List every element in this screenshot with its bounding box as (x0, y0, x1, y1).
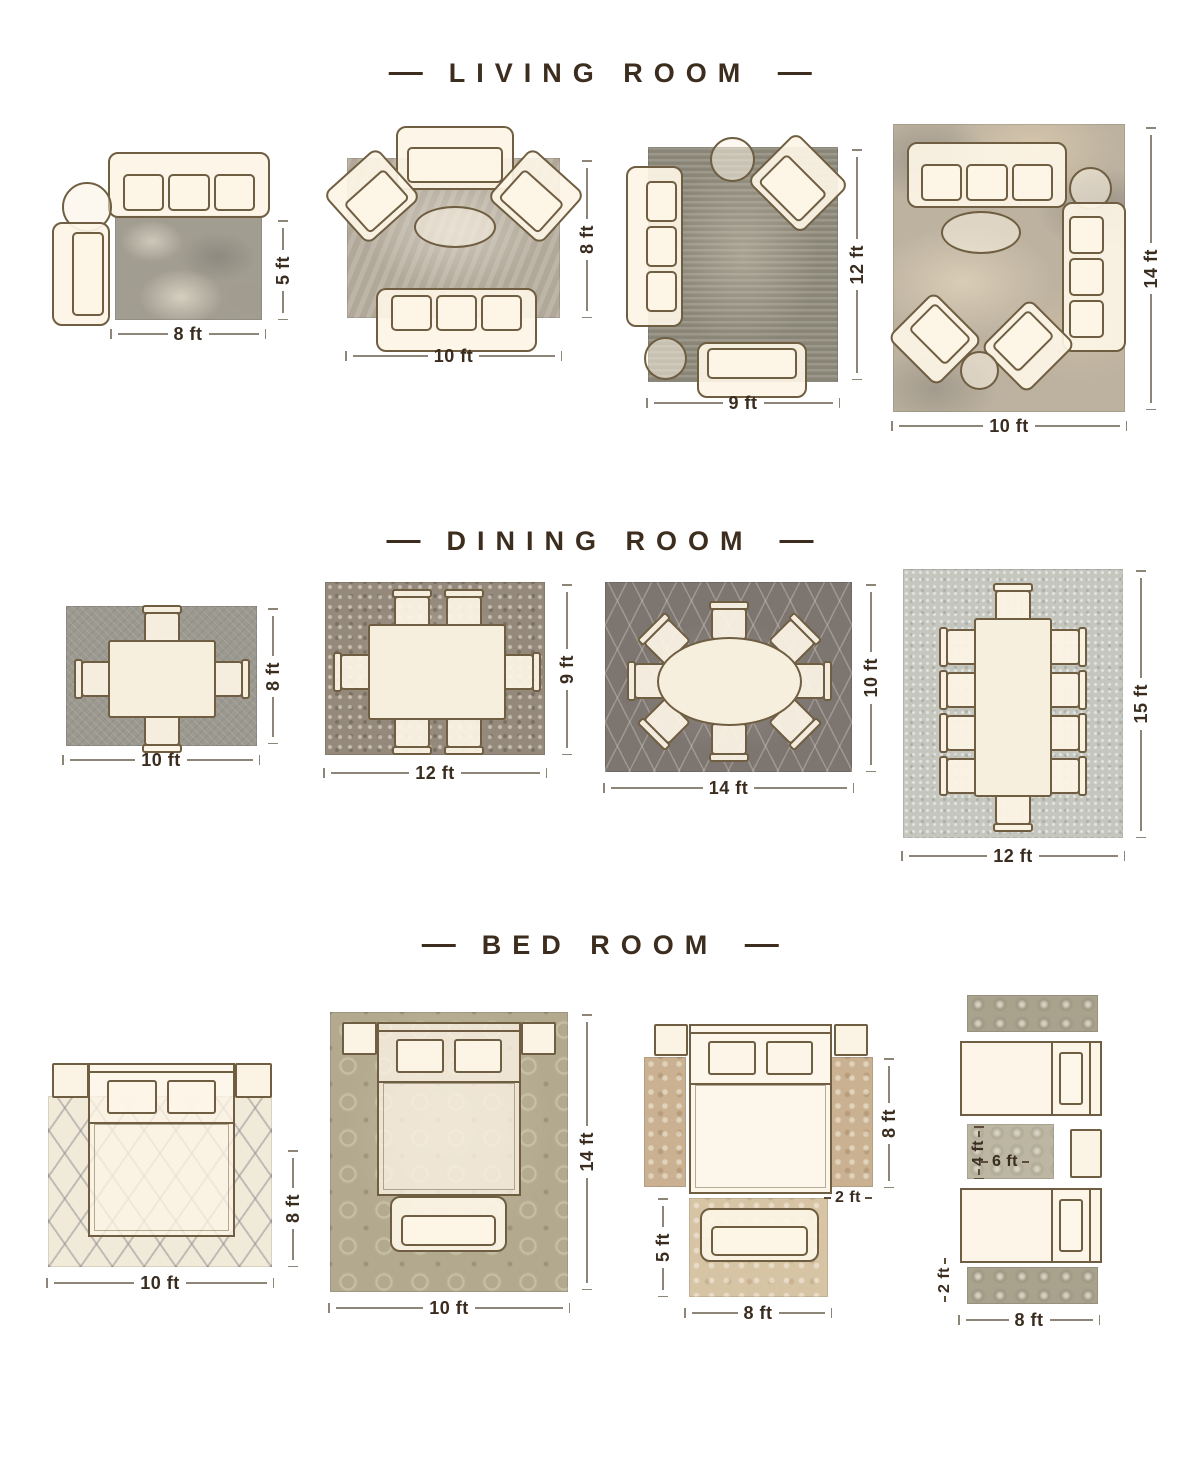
dr4-chair-bottom (995, 793, 1031, 825)
lr2-oval-coffee-table (414, 206, 496, 248)
dr1-dining-table (108, 640, 216, 718)
dim-line (566, 592, 568, 650)
cushion (1069, 300, 1104, 338)
dim-tick (658, 1296, 668, 1298)
bed-body (379, 1083, 519, 1194)
br3-runner-width-dimension: 2 ft (824, 1188, 882, 1208)
dr4-chair-right-1 (1048, 629, 1080, 665)
living-room-header: LIVING ROOM (389, 58, 812, 89)
dim-label: 14 ft (1141, 249, 1162, 289)
br1-height-dimension: 8 ft (282, 1150, 304, 1267)
cushion (921, 164, 962, 201)
dim-line (944, 1296, 946, 1302)
headboard (379, 1024, 519, 1032)
dim-tick (831, 1308, 833, 1318)
dr1-chair-bottom (144, 714, 180, 746)
rug-size-guide: LIVING ROOM 5 ft 8 ft 8 ft 10 ft (0, 0, 1200, 1467)
dim-tick (546, 768, 548, 778)
dim-tick (273, 1278, 275, 1288)
dim-line (54, 1282, 135, 1284)
dim-tick (1136, 837, 1146, 839)
dim-label: 10 ft (141, 750, 181, 771)
dim-tick (562, 584, 572, 586)
br2-height-dimension: 14 ft (576, 1014, 598, 1290)
cushion (646, 181, 677, 222)
dim-label: 14 ft (709, 778, 749, 799)
dim-line (779, 1312, 825, 1314)
sofa-cushions (401, 1215, 496, 1246)
br4-twin-bed-bottom (960, 1188, 1102, 1263)
dim-line (118, 333, 168, 335)
dim-line (865, 1197, 872, 1199)
dim-label: 12 ft (847, 245, 868, 285)
dim-line (70, 759, 136, 761)
cushion (168, 174, 210, 211)
br2-width-dimension: 10 ft (328, 1298, 570, 1318)
dim-tick (582, 1014, 592, 1016)
sofa-cushions (707, 348, 796, 379)
cushion (72, 232, 103, 316)
dim-line (209, 333, 259, 335)
br2-nightstand-right (521, 1022, 556, 1055)
dim-label: 10 ft (429, 1298, 469, 1319)
br3-runner-right (831, 1057, 873, 1187)
lr4-width-dimension: 10 ft (891, 416, 1127, 436)
dim-tick (288, 1266, 298, 1268)
sofa-cushions (391, 295, 523, 331)
cushion (481, 295, 522, 331)
dim-line (754, 787, 846, 789)
dim-tick (839, 398, 841, 408)
dim-label: 10 ft (989, 416, 1029, 437)
headboard (90, 1065, 233, 1073)
br3-nightstand-left (654, 1024, 688, 1056)
cushion (707, 348, 796, 379)
dim-tick (1146, 127, 1156, 129)
dim-line (566, 690, 568, 748)
lr3-loveseat (697, 342, 807, 398)
dim-line (479, 355, 554, 357)
br1-bed (88, 1063, 235, 1237)
bed-body (90, 1124, 233, 1235)
lr4-sofa-top (907, 142, 1067, 208)
header-dash (744, 944, 778, 947)
dim-line (888, 1066, 890, 1103)
pillow (454, 1039, 502, 1073)
cushion (1012, 164, 1053, 201)
dr4-height-dimension: 15 ft (1130, 570, 1152, 838)
br4-runner-top (967, 995, 1098, 1032)
dim-line (856, 290, 858, 372)
br3-loveseat (700, 1208, 819, 1262)
dim-tick (345, 351, 347, 361)
dim-line (187, 759, 253, 761)
section-title: DINING ROOM (447, 526, 754, 557)
dr4-chair-right-4 (1048, 758, 1080, 794)
dim-line (870, 592, 872, 653)
lr3-round-table-bottom (644, 337, 687, 380)
lr2-sofa (376, 288, 537, 352)
dim-line (1035, 425, 1120, 427)
headboard (1051, 1190, 1091, 1261)
dim-tick (603, 783, 605, 793)
dr3-oval-dining-table (657, 637, 802, 726)
lr4-oval-coffee-table (941, 211, 1021, 254)
dim-tick (958, 1315, 960, 1325)
dr2-chair-bottom-2 (446, 716, 482, 748)
lr1-width-dimension: 8 ft (110, 324, 266, 344)
br4-runner-bottom (967, 1267, 1098, 1304)
br3-bed (689, 1024, 832, 1194)
dim-line (1150, 135, 1152, 243)
header-dash (422, 944, 456, 947)
dim-tick (853, 783, 855, 793)
lr1-height-dimension: 5 ft (272, 220, 294, 320)
dim-tick (1099, 1315, 1101, 1325)
dim-line (888, 1144, 890, 1181)
dim-label: 12 ft (993, 846, 1033, 867)
dr1-width-dimension: 10 ft (62, 750, 260, 770)
sofa-cushions (407, 147, 503, 183)
dim-tick (265, 329, 267, 339)
br3-foot-rug-height-dimension: 5 ft (652, 1198, 674, 1297)
lr3-width-dimension: 9 ft (646, 393, 840, 413)
dim-tick (582, 317, 592, 319)
dim-tick (974, 1178, 984, 1180)
dim-label: 8 ft (1015, 1310, 1044, 1331)
lr4-sofa-right (1062, 202, 1126, 352)
dim-tick (569, 1303, 571, 1313)
br2-bench (390, 1196, 507, 1252)
sofa-cushions (123, 174, 256, 211)
dim-label: 5 ft (653, 1233, 674, 1262)
dr2-chair-bottom-1 (394, 716, 430, 748)
sofa-cushions (72, 232, 103, 316)
dim-line (662, 1268, 664, 1290)
lr1-sofa (108, 152, 270, 218)
dim-tick (884, 1187, 894, 1189)
lr2-width-dimension: 10 ft (345, 346, 562, 366)
dr3-chair-top (711, 608, 747, 640)
cushion (407, 147, 503, 183)
dim-tick (901, 851, 903, 861)
dim-line (944, 1258, 946, 1264)
dim-tick (62, 755, 64, 765)
header-dash (389, 72, 423, 75)
dim-line (981, 1161, 988, 1163)
dim-line (282, 228, 284, 250)
lr4-round-table-bottom (960, 351, 999, 390)
dim-line (336, 1307, 424, 1309)
dr2-chair-right (502, 654, 534, 690)
dim-line (353, 355, 428, 357)
dim-tick (684, 1308, 686, 1318)
dr2-height-dimension: 9 ft (556, 584, 578, 755)
header-dash (777, 72, 811, 75)
dim-line (1050, 1319, 1093, 1321)
dim-tick (1124, 851, 1126, 861)
br2-nightstand-left (342, 1022, 377, 1055)
dim-label: 2 ft (936, 1267, 954, 1293)
dim-label: 8 ft (879, 1109, 900, 1138)
dr3-height-dimension: 10 ft (860, 584, 882, 772)
sofa-cushions (646, 181, 677, 313)
br3-foot-rug-width-dimension: 8 ft (684, 1303, 832, 1323)
lr2-height-dimension: 8 ft (576, 160, 598, 318)
dim-tick (866, 584, 876, 586)
br3-nightstand-right (834, 1024, 868, 1056)
dim-label: 8 ft (283, 1194, 304, 1223)
dim-tick (1146, 409, 1156, 411)
dim-tick (884, 1058, 894, 1060)
dim-tick (259, 755, 261, 765)
dim-tick (328, 1303, 330, 1313)
dim-line (978, 1131, 980, 1137)
br1-width-dimension: 10 ft (46, 1273, 274, 1293)
br1-nightstand-left (52, 1063, 89, 1098)
cushion (123, 174, 165, 211)
dim-label: 9 ft (729, 393, 758, 414)
headboard (1051, 1043, 1091, 1114)
dim-tick (288, 1150, 298, 1152)
dim-line (611, 787, 703, 789)
header-dash (387, 540, 421, 543)
dim-line (475, 1307, 563, 1309)
dim-tick (646, 398, 648, 408)
dim-tick (561, 351, 563, 361)
cushion (1069, 258, 1104, 296)
pillow (766, 1041, 814, 1075)
dim-tick (582, 1289, 592, 1291)
dim-tick (852, 379, 862, 381)
dim-tick (658, 1198, 668, 1200)
dim-label: 10 ft (140, 1273, 180, 1294)
dim-label: 8 ft (263, 662, 284, 691)
dim-label: 12 ft (415, 763, 455, 784)
dim-tick (582, 160, 592, 162)
br4-between-rug-width-dimension: 6 ft (981, 1152, 1051, 1172)
pillow (167, 1080, 217, 1114)
dim-line (870, 704, 872, 765)
dim-label: 2 ft (835, 1189, 861, 1207)
br1-nightstand-right (235, 1063, 272, 1098)
dim-line (586, 168, 588, 219)
pillow-zone (90, 1073, 233, 1124)
dim-label: 15 ft (1131, 684, 1152, 724)
dim-tick (323, 768, 325, 778)
dim-tick (562, 754, 572, 756)
br4-runner-length-dimension: 8 ft (958, 1310, 1100, 1330)
dim-line (292, 1158, 294, 1189)
dim-line (764, 402, 833, 404)
dim-line (978, 1169, 980, 1175)
dim-line (586, 1178, 588, 1283)
dim-line (1140, 578, 1142, 679)
dim-tick (866, 771, 876, 773)
dr4-width-dimension: 12 ft (901, 846, 1125, 866)
dim-label: 5 ft (273, 256, 294, 285)
headboard (691, 1026, 830, 1034)
dim-tick (278, 220, 288, 222)
dr2-dining-table (368, 624, 506, 720)
br4-twin-bed-top (960, 1041, 1102, 1116)
dim-label: 14 ft (577, 1132, 598, 1172)
dim-line (282, 291, 284, 313)
lr2-loveseat (396, 126, 514, 190)
cushion (1069, 216, 1104, 254)
dim-label: 8 ft (174, 324, 203, 345)
br2-bed (377, 1022, 521, 1196)
dim-line (1022, 1161, 1029, 1163)
dim-line (662, 1206, 664, 1228)
lr4-height-dimension: 14 ft (1140, 127, 1162, 410)
dim-label: 6 ft (992, 1153, 1018, 1171)
cushion (711, 1226, 808, 1256)
bed-room-header: BED ROOM (422, 930, 779, 961)
pillow-zone (379, 1032, 519, 1083)
lr3-round-table-top (710, 137, 755, 182)
dim-line (1140, 730, 1142, 831)
dim-line (824, 1197, 831, 1199)
section-title: LIVING ROOM (449, 58, 752, 89)
dim-line (1039, 855, 1118, 857)
dim-line (654, 402, 723, 404)
dim-line (272, 616, 274, 656)
cushion (646, 226, 677, 267)
sofa-cushions (921, 164, 1052, 201)
pillow (708, 1041, 756, 1075)
br3-runner-height-dimension: 8 ft (878, 1058, 900, 1188)
cushion (214, 174, 256, 211)
cushion (391, 295, 432, 331)
pillow (396, 1039, 444, 1073)
section-title: BED ROOM (482, 930, 719, 961)
dim-tick (268, 608, 278, 610)
dim-line (331, 772, 410, 774)
br3-runner-left (644, 1057, 686, 1187)
dim-tick (46, 1278, 48, 1288)
dim-label: 10 ft (861, 658, 882, 698)
lr3-sofa (626, 166, 683, 327)
dim-tick (891, 421, 893, 431)
dim-label: 10 ft (434, 346, 474, 367)
dim-line (909, 855, 988, 857)
pillow-zone (691, 1034, 830, 1085)
lr1-loveseat (52, 222, 110, 326)
lr1-rug (115, 215, 262, 320)
sofa-cushions (1069, 216, 1104, 339)
br4-nightstand (1070, 1129, 1102, 1178)
dim-tick (268, 743, 278, 745)
cushion (966, 164, 1007, 201)
cushion (436, 295, 477, 331)
dim-line (586, 260, 588, 311)
dim-line (292, 1229, 294, 1260)
dim-label: 8 ft (577, 225, 598, 254)
dim-tick (974, 1126, 984, 1128)
dim-line (856, 157, 858, 239)
dr3-width-dimension: 14 ft (603, 778, 854, 798)
dim-line (461, 772, 540, 774)
dim-tick (1136, 570, 1146, 572)
dim-line (586, 1022, 588, 1127)
dr4-chair-right-2 (1048, 672, 1080, 708)
br4-runner-width-dimension: 2 ft (934, 1258, 956, 1312)
dim-tick (1126, 421, 1128, 431)
sofa-cushions (711, 1226, 808, 1256)
pillow (107, 1080, 157, 1114)
lr3-height-dimension: 12 ft (846, 149, 868, 380)
dim-tick (278, 319, 288, 321)
pillow (1059, 1199, 1083, 1251)
dim-tick (110, 329, 112, 339)
dim-line (272, 697, 274, 737)
dim-line (692, 1312, 738, 1314)
dr3-chair-bottom (711, 723, 747, 755)
dim-label: 9 ft (557, 655, 578, 684)
cushion (646, 271, 677, 312)
dr1-height-dimension: 8 ft (262, 608, 284, 744)
cushion (401, 1215, 496, 1246)
dim-line (186, 1282, 267, 1284)
dim-label: 8 ft (744, 1303, 773, 1324)
pillow (1059, 1052, 1083, 1104)
dr2-width-dimension: 12 ft (323, 763, 547, 783)
dim-line (966, 1319, 1009, 1321)
dr4-dining-table (974, 618, 1052, 797)
dim-line (899, 425, 984, 427)
dim-line (1150, 294, 1152, 402)
dining-room-header: DINING ROOM (387, 526, 814, 557)
bed-body (691, 1085, 830, 1192)
dim-tick (852, 149, 862, 151)
header-dash (780, 540, 814, 543)
dr4-chair-right-3 (1048, 715, 1080, 751)
